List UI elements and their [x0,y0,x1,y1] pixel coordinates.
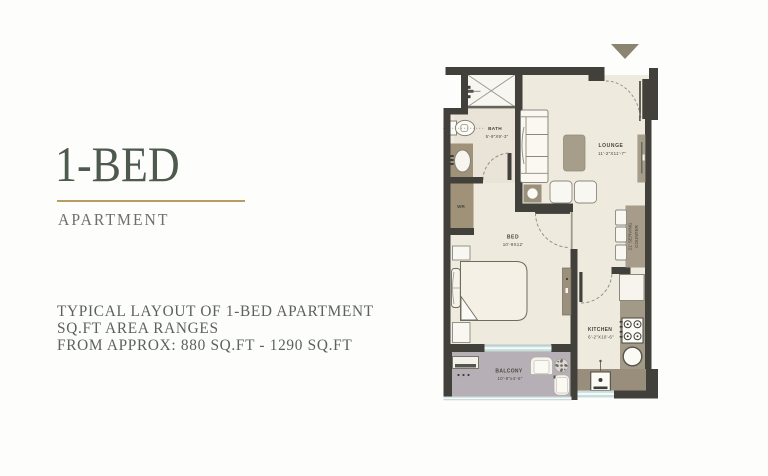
svg-text:KITCHEN: KITCHEN [588,327,612,333]
svg-text:6'-2"X10'-6": 6'-2"X10'-6" [588,335,614,340]
svg-text:5'-9"X9'-3": 5'-9"X9'-3" [486,134,509,139]
svg-text:LOUNGE: LOUNGE [599,143,624,149]
svg-text:11'-2"X11'-7": 11'-2"X11'-7" [598,151,626,156]
svg-text:10'-9"x4'-6": 10'-9"x4'-6" [497,376,522,381]
svg-text:21' SERVING: 21' SERVING [628,222,633,250]
svg-text:COUNTER: COUNTER [634,224,639,247]
svg-text:BED: BED [507,235,519,241]
svg-text:10'-9X12': 10'-9X12' [503,242,524,247]
svg-text:WR: WR [457,204,465,209]
svg-text:BALCONY: BALCONY [495,369,522,375]
svg-text:BATH: BATH [488,126,502,131]
